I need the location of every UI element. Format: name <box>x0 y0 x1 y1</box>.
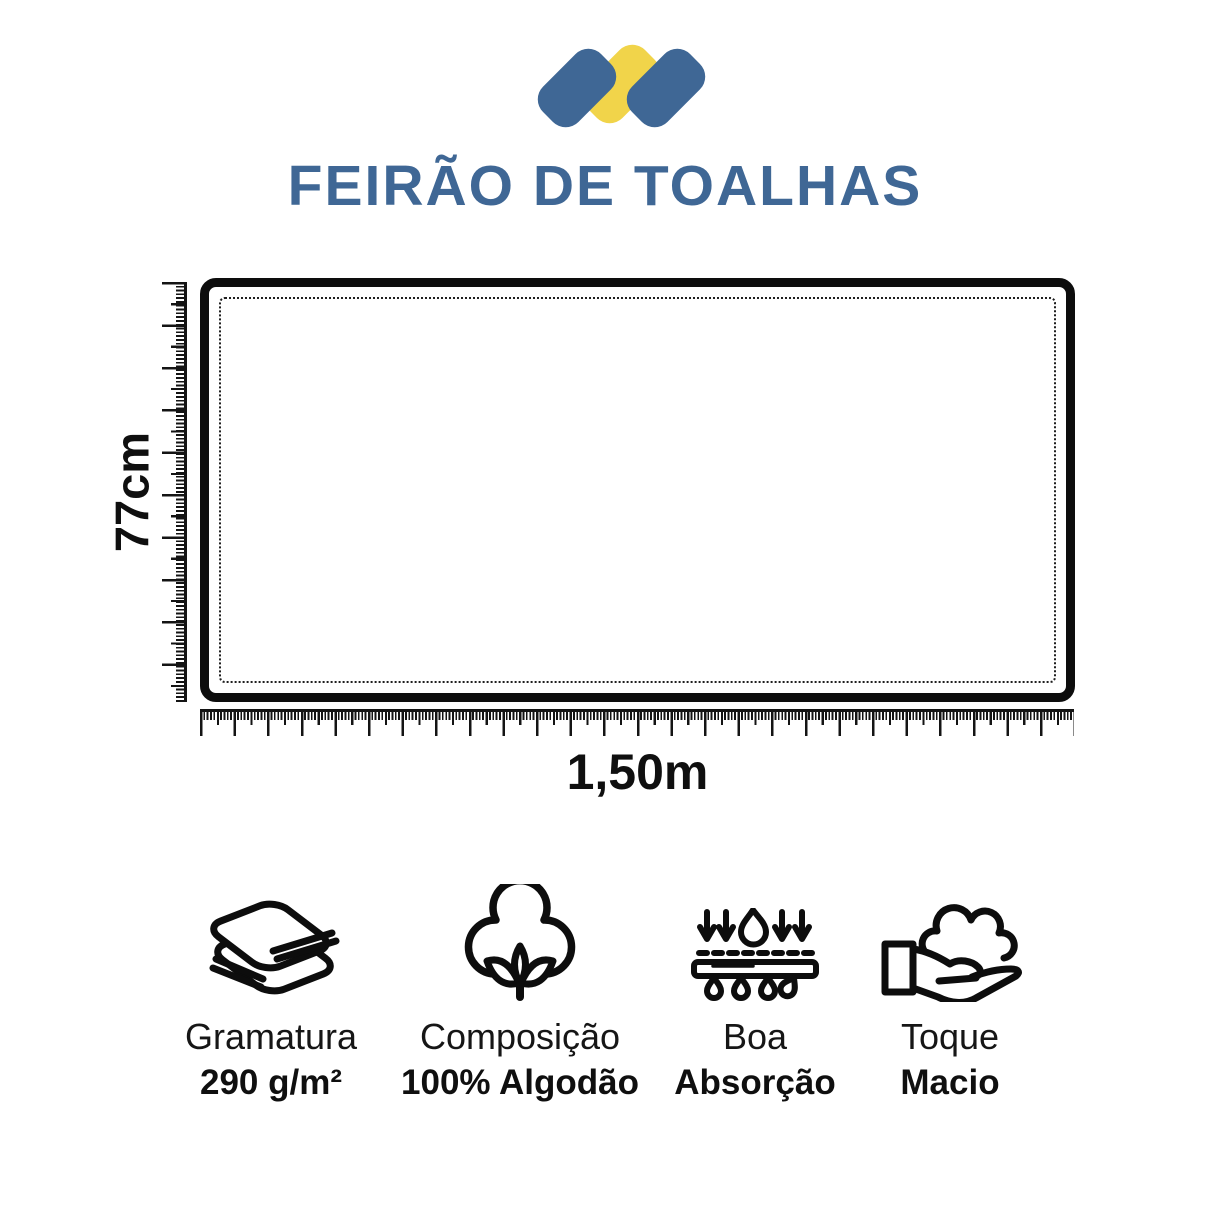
product-infographic: FEIRÃO DE TOALHAS 77cm 1,50m Gramatura <box>0 0 1210 1210</box>
towel-stitch-border <box>219 297 1056 683</box>
feature-label: Composição <box>400 1016 640 1058</box>
feature-label: Toque <box>830 1016 1070 1058</box>
soft-touch-hand-icon <box>830 868 1070 1002</box>
feature-value: 290 g/m² <box>151 1062 391 1104</box>
feature-value: Macio <box>830 1062 1070 1104</box>
towel-outline <box>200 278 1075 702</box>
feature-value: 100% Algodão <box>400 1062 640 1104</box>
vertical-ruler <box>161 282 187 702</box>
folded-towels-icon <box>151 868 391 1002</box>
height-label: 77cm <box>105 405 161 580</box>
feature-composicao: Composição 100% Algodão <box>400 868 640 1104</box>
feature-toque: Toque Macio <box>830 868 1070 1104</box>
horizontal-ruler <box>200 709 1074 736</box>
feature-gramatura: Gramatura 290 g/m² <box>151 868 391 1104</box>
feature-label: Gramatura <box>151 1016 391 1058</box>
brand-title: FEIRÃO DE TOALHAS <box>0 156 1210 216</box>
cotton-flower-icon <box>400 868 640 1002</box>
width-label: 1,50m <box>200 744 1075 800</box>
